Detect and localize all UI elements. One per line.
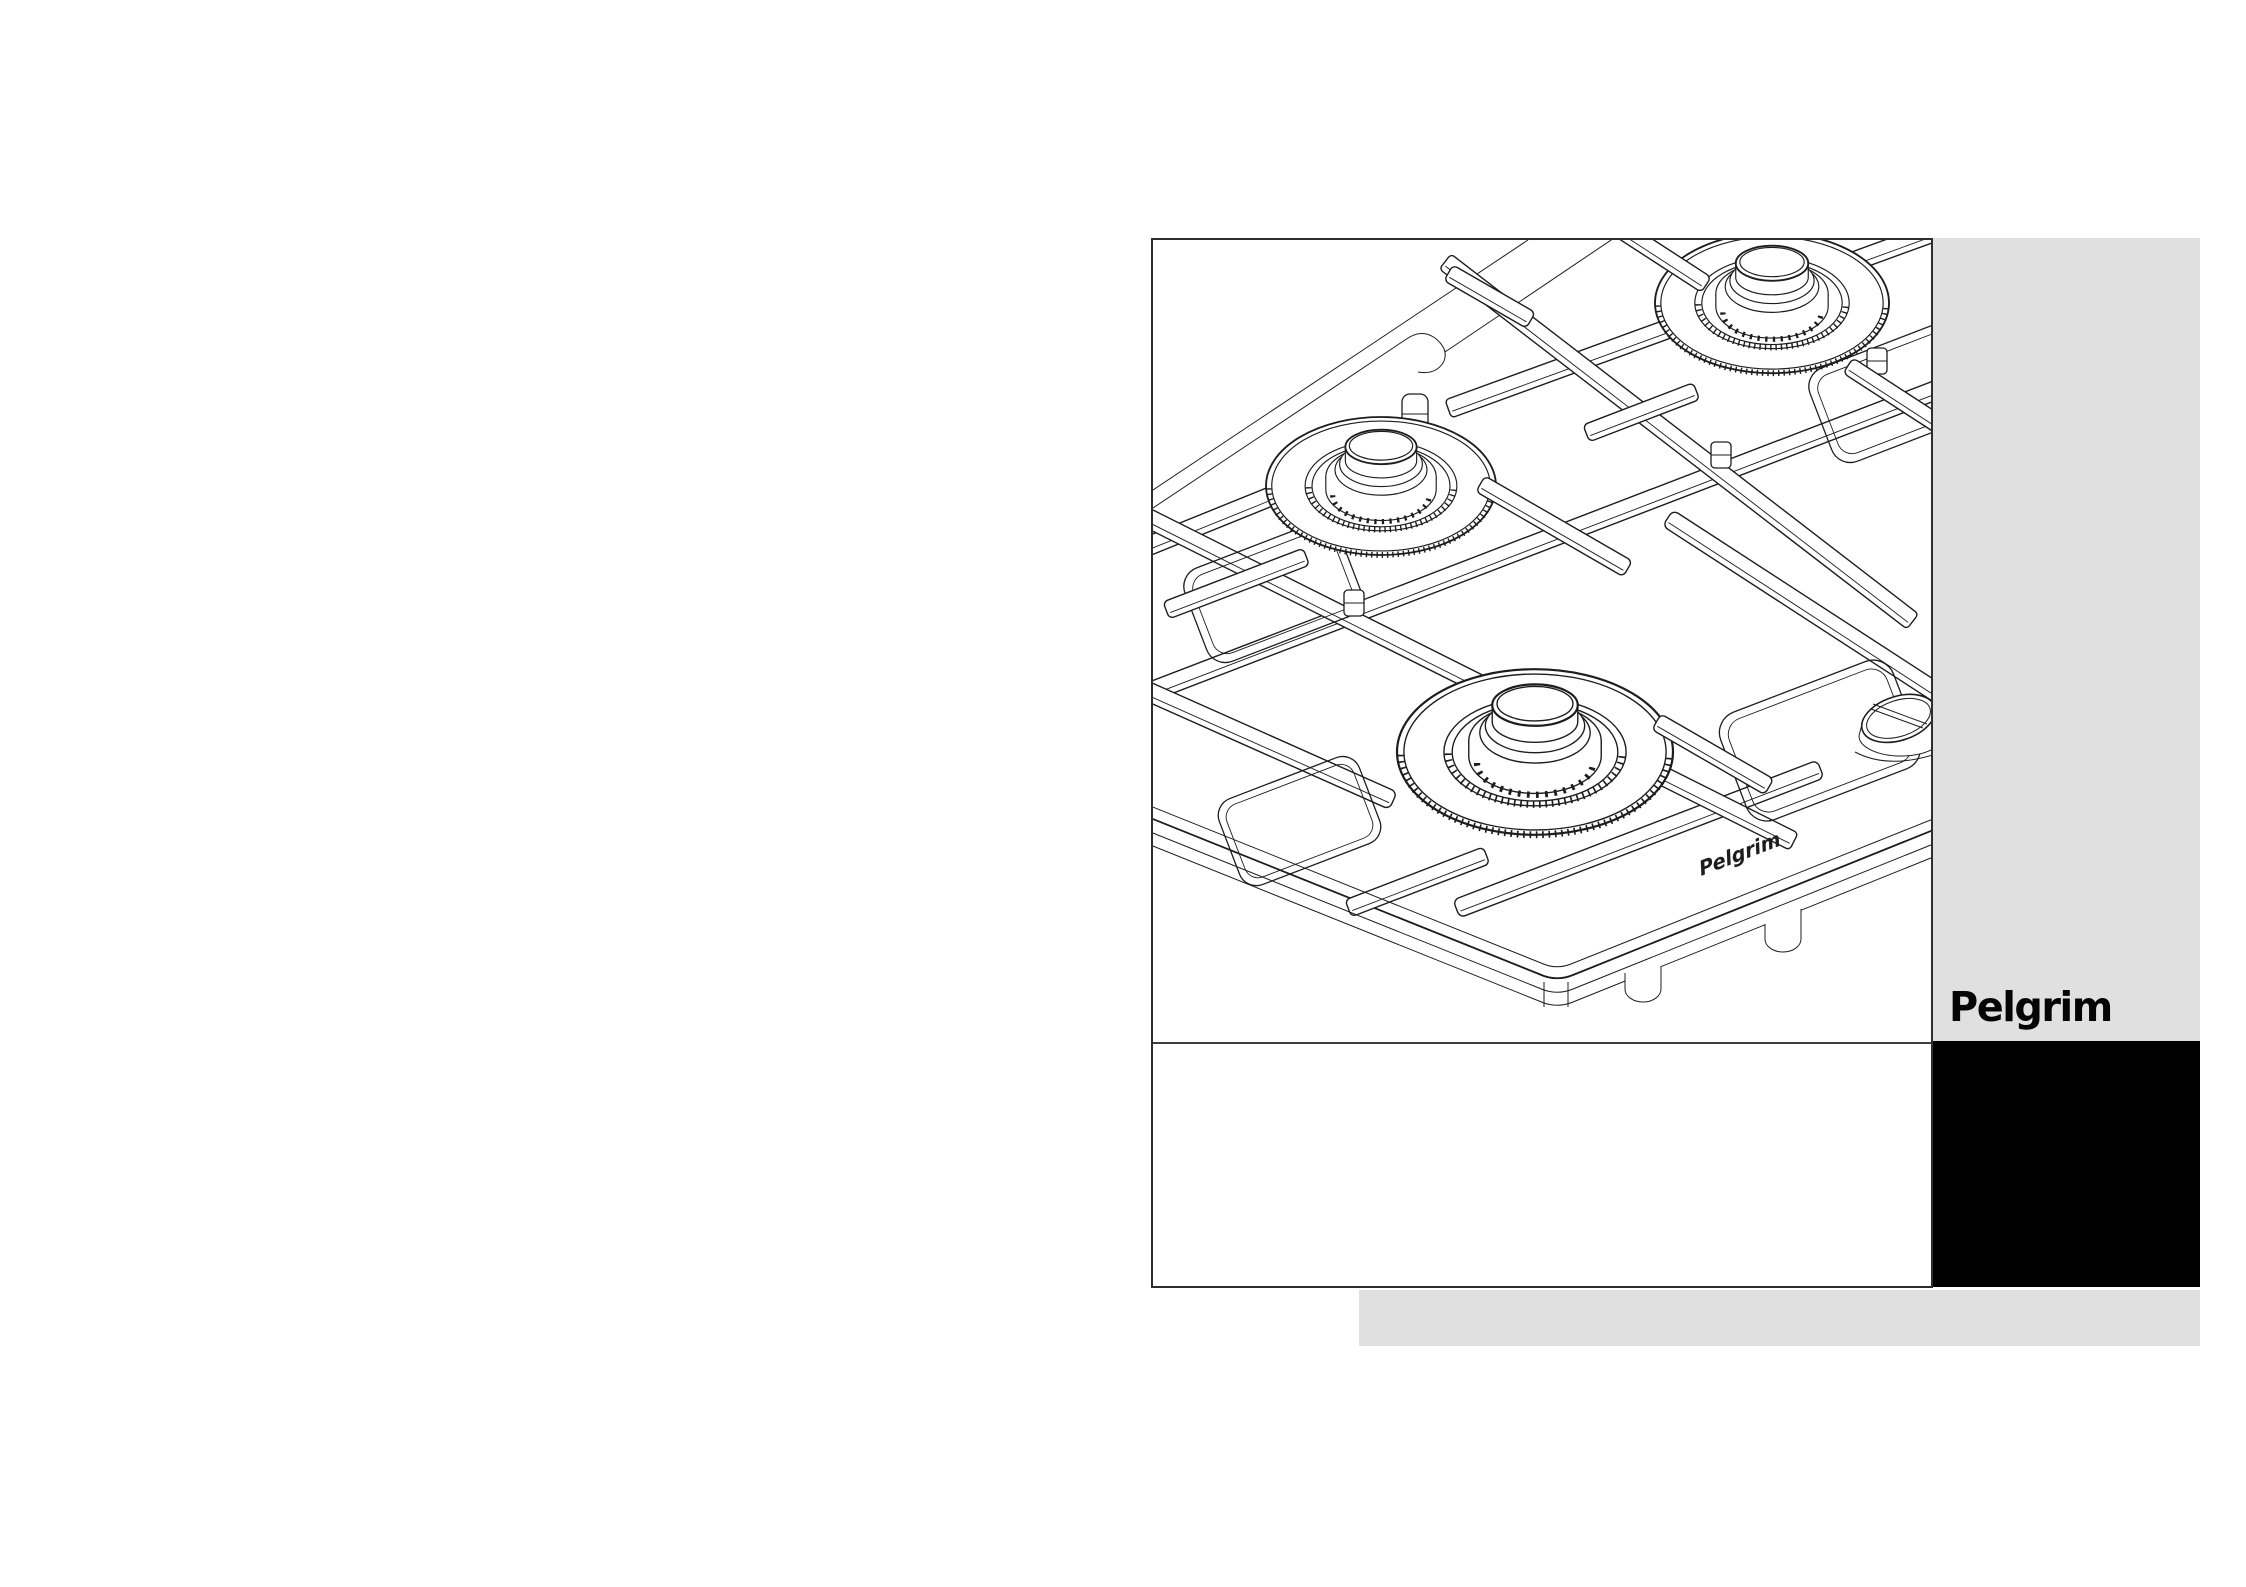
gas-hob-illustration: Pelgrim	[1153, 240, 1931, 1042]
burner-back-right	[1655, 240, 1889, 373]
hob-foot	[1765, 909, 1801, 952]
grid-post	[1711, 442, 1731, 468]
brand-logo: Pelgrim	[1949, 983, 2112, 1031]
hob-foot	[1625, 966, 1661, 1002]
grid-post	[1344, 590, 1364, 616]
burner-front-large	[1397, 669, 1673, 835]
bottom-gray-strip	[1359, 1290, 2200, 1346]
burner-middle-left	[1266, 417, 1496, 555]
black-panel	[1933, 1041, 2200, 1287]
manual-cover-page: Pelgrim Pelgrim	[0, 0, 2246, 1587]
cover-illustration-frame: Pelgrim	[1151, 238, 1933, 1288]
frame-lower-blank-area	[1153, 1044, 1931, 1286]
gray-side-panel: Pelgrim	[1933, 238, 2200, 1041]
